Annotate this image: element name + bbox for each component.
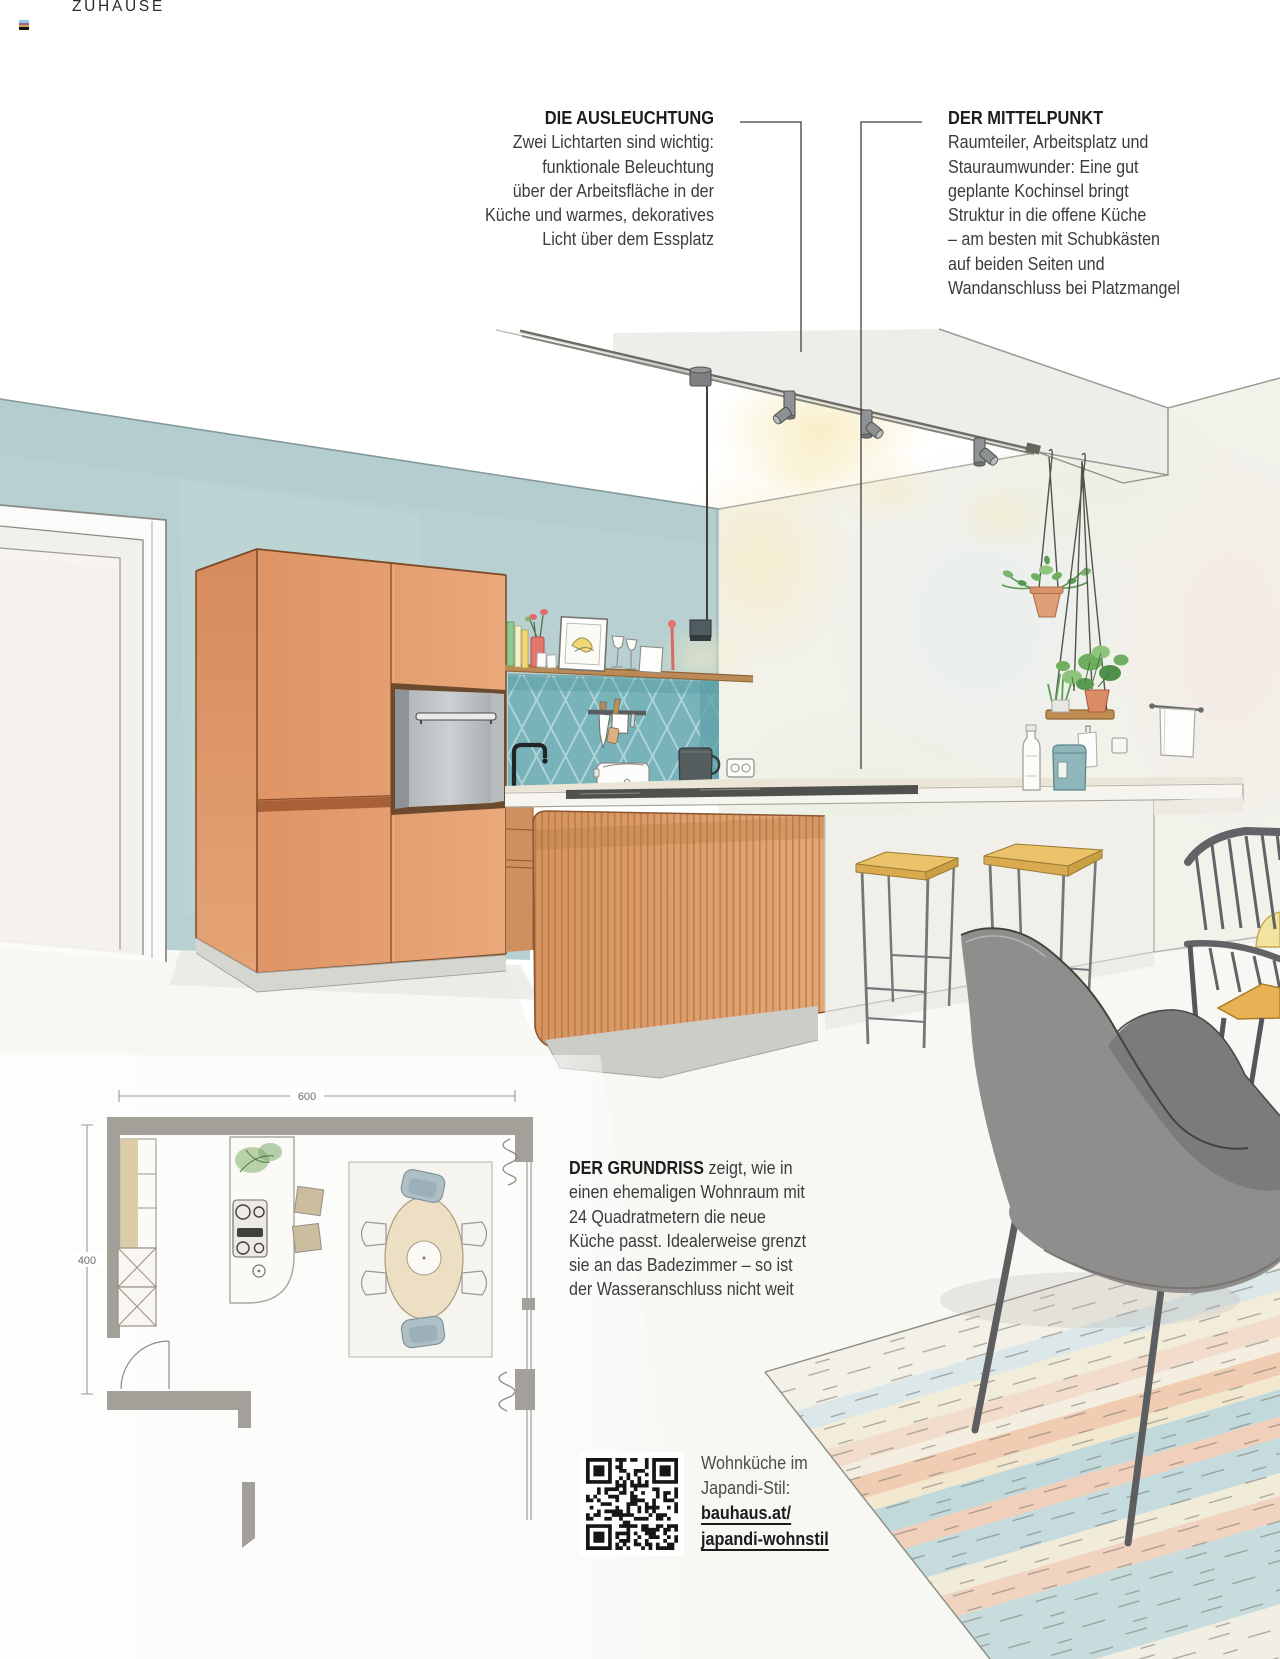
svg-text:600: 600 xyxy=(298,1091,316,1103)
svg-text:400: 400 xyxy=(78,1255,96,1267)
